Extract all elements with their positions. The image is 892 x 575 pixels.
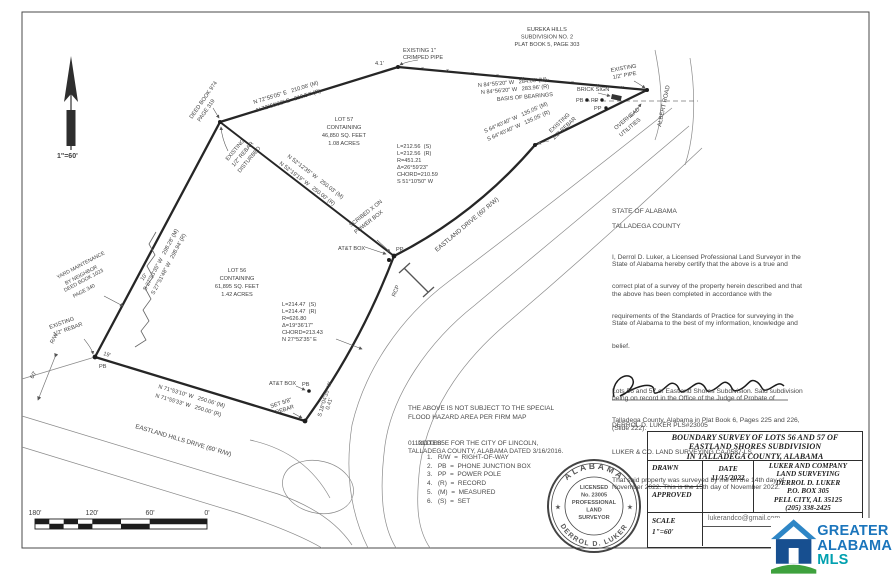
surveyor-name-license: DERROL D. LUKER PLS#23005 [612,421,752,430]
svg-text:Δ=26°59'23": Δ=26°59'23" [397,165,428,171]
yard-maintenance-label: YARD MAINTENANCE BY NEIGHBOR DEED BOOK 1… [56,250,106,300]
svg-text:R=626.80: R=626.80 [282,316,306,322]
svg-text:L=214.47 (S): L=214.47 (S) [282,302,316,308]
mls-text-mls: MLS [817,553,892,568]
date-cell: DATE 11/15/2022 [703,461,754,512]
north-scale-label: 1"=60' [57,153,78,160]
pp-label: PP [591,98,599,104]
svg-text:CHORD=213.43: CHORD=213.43 [282,330,323,336]
company-cell: LUKER AND COMPANYLAND SURVEYING DERROL D… [754,461,862,512]
svg-text:LOT 56: LOT 56 [228,268,247,274]
scale-bar-180: 180' [28,510,41,517]
svg-text:N 27°52'35" E: N 27°52'35" E [282,337,317,343]
dim-19-label: 19' [102,351,111,359]
rcp-label: RCP [391,284,401,297]
svg-text:×: × [446,68,449,74]
svg-text:LOT 57: LOT 57 [335,117,354,123]
culvert-symbol [399,263,434,297]
date-label: DATE [703,464,753,473]
lot57-label: LOT 57 CONTAINING 46,850 SQ. FEET 1.08 A… [322,117,367,147]
att-box-label: AT&T BOX [269,381,296,387]
svg-text:R=451.21: R=451.21 [397,158,421,164]
mls-house-icon [771,518,817,574]
svg-text:×: × [471,71,474,77]
scale-bar: 180' 120' 60' 0' [28,510,209,529]
scale-bar-60: 60' [145,510,154,517]
note-item: 6. (S) = SET [427,498,531,507]
crimped-offset-label: 4.1' [375,61,384,67]
crimped-pipe-label: EXISTING 1" [403,48,436,54]
seal-land: LAND [586,508,602,514]
scale-bar-120: 120' [85,510,98,517]
svg-text:CONTAINING: CONTAINING [327,125,362,131]
mls-text-greater: GREATER [817,524,892,539]
north-arrow [64,56,78,150]
scale-bar-0: 0' [204,510,209,517]
eureka-hills-label: EUREKA HILLS [527,27,567,33]
date-value: 11/15/2022 [703,473,753,482]
svg-text:×: × [421,66,424,72]
note-item: 2. PB = PHONE JUNCTION BOX [427,463,531,472]
eastland-drive-label: EASTLAND DRIVE (60' R/W) [434,196,501,253]
svg-text:×: × [496,73,499,79]
svg-text:L=212.56 (R): L=212.56 (R) [397,151,431,157]
eastland-hills-drive-label: EASTLAND HILLS DRIVE (60' R/W) [134,423,232,458]
survey-title: BOUNDARY SURVEY OF LOTS 56 AND 57 OF EAS… [648,432,862,461]
notes-title: NOTES: [418,440,443,447]
note-item: 5. (M) = MEASURED [427,489,531,498]
svg-text:1.42 ACRES: 1.42 ACRES [221,292,253,298]
brick-sign-symbol [611,94,622,101]
cert-paragraph: I, Derrol D. Luker, a Licensed Professio… [612,239,848,365]
svg-text:CHORD=210.59: CHORD=210.59 [397,172,438,178]
svg-text:46,850 SQ. FEET: 46,850 SQ. FEET [322,133,367,139]
att-box-label: AT&T BOX [338,246,365,252]
note-item: 4. (R) = RECORD [427,480,531,489]
rw-dimension-line [38,357,55,400]
scale-value: 1"=60' [652,526,702,537]
brick-sign-label: BRICK SIGN [577,87,609,93]
road-lines [22,50,702,548]
notes-list: 1. R/W = RIGHT-OF-WAY 2. PB = PHONE JUNC… [427,454,531,506]
approved-label: APPROVED [648,487,702,512]
dim-60-label: 60' [29,371,38,380]
cert-county: TALLADEGA COUNTY [612,223,848,230]
albert-road-label: ALBERT ROAD [657,84,672,127]
cert-state: STATE OF ALABAMA [612,208,848,215]
svg-text:Δ=19°36'17": Δ=19°36'17" [282,323,313,329]
svg-text:×: × [571,80,574,86]
curve1-data: L=212.56 (S) L=212.56 (R) R=451.21 Δ=26°… [397,144,438,185]
note-item: 3. PP = POWER POLE [427,471,531,480]
eureka-hills-label: PLAT BOOK 5, PAGE 303 [515,42,580,48]
curve2-data: L=214.47 (S) L=214.47 (R) R=626.80 Δ=19°… [282,302,323,343]
scale-cell: SCALE 1"=60' [648,513,703,546]
eureka-hills-label: SUBDIVISION NO. 2 [521,35,573,41]
svg-text:CONTAINING: CONTAINING [220,276,255,282]
mls-text-alabama: ALABAMA [817,539,892,554]
svg-text:S 51°10'50" W: S 51°10'50" W [397,179,434,185]
lot56-label: LOT 56 CONTAINING 61,895 SQ. FEET 1.42 A… [215,268,260,298]
svg-text:×: × [621,85,624,91]
drawn-label: DRAWN [648,461,702,487]
lot-divider-line [220,122,394,256]
deed-book-974-label: DEED BOOK 974 PAGE 319 [189,81,219,124]
pp-label: PP [594,106,602,112]
seal-number: No. 23005 [581,493,607,499]
svg-text:1.08 ACRES: 1.08 ACRES [328,141,360,147]
set-rebar-label: SET 5/8" REBAR [270,397,295,416]
pb-label: PB [302,382,310,388]
note-item: 1. R/W = RIGHT-OF-WAY [427,454,531,463]
svg-text:61,895 SQ. FEET: 61,895 SQ. FEET [215,284,260,290]
seal-surveyor: SURVEYOR [578,515,609,521]
scale-label: SCALE [652,515,702,526]
seal-licensed: LICENSED [580,485,608,491]
seal-professional: PROFESSIONAL [572,500,617,506]
pp-label: PP [396,247,404,253]
crimped-pipe-label: CRIMPED PIPE [403,55,443,61]
rebar-disturbed-label: EXISTING 1/2" REBAR DISTURBED [225,138,262,174]
greater-alabama-mls-logo: GREATER ALABAMA MLS [771,518,892,575]
svg-text:L=212.56 (S): L=212.56 (S) [397,144,431,150]
seal-star-left: ★ [555,504,561,511]
survey-plat-sheet: ××× ××× ××× EUREKA HILLS SUBDIVISION NO.… [0,0,892,575]
pb-label: PB [99,364,107,370]
pb-label: PB [576,98,584,104]
svg-text:L=214.47 (R): L=214.47 (R) [282,309,316,315]
